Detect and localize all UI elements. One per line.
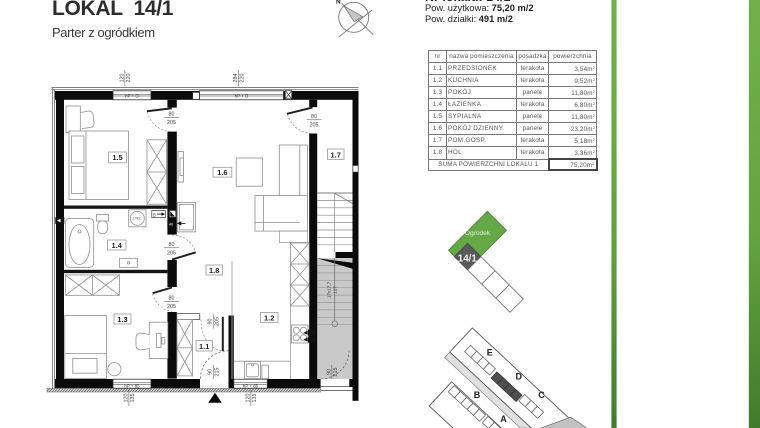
svg-text:40: 40	[169, 222, 173, 226]
svg-text:120: 120	[123, 394, 129, 403]
svg-text:215: 215	[333, 368, 339, 377]
svg-text:205: 205	[167, 250, 176, 256]
svg-text:hP + O: hP + O	[125, 93, 139, 98]
svg-text:220: 220	[240, 74, 246, 83]
svg-text:205: 205	[167, 120, 176, 126]
svg-text:N: N	[336, 0, 341, 6]
svg-text:284: 284	[233, 74, 239, 83]
svg-text:80: 80	[169, 296, 175, 302]
svg-text:A: A	[500, 414, 507, 424]
svg-text:Z.W.C.: Z.W.C.	[132, 217, 142, 221]
svg-text:90: 90	[208, 369, 214, 375]
svg-text:205: 205	[167, 304, 176, 310]
svg-text:80: 80	[169, 242, 175, 248]
svg-text:1.1: 1.1	[199, 342, 209, 351]
svg-text:B: B	[474, 390, 481, 400]
svg-text:hP + 85: hP + 85	[243, 383, 259, 388]
svg-text:1.3: 1.3	[117, 315, 127, 324]
svg-text:135: 135	[252, 394, 258, 403]
svg-text:215: 215	[214, 368, 220, 377]
svg-text:17x17,7: 17x17,7	[327, 281, 332, 298]
svg-text:Ogródek: Ogródek	[465, 230, 491, 237]
svg-text:135: 135	[130, 394, 136, 403]
svg-text:90: 90	[208, 319, 214, 325]
svg-text:205: 205	[310, 122, 319, 128]
svg-text:80: 80	[169, 112, 175, 118]
svg-text:5: 5	[153, 212, 156, 218]
svg-text:220: 220	[126, 74, 132, 83]
svg-text:1.8: 1.8	[209, 266, 219, 275]
svg-text:1.6: 1.6	[217, 168, 227, 177]
svg-text:hP + 85: hP + 85	[124, 383, 140, 388]
svg-text:E: E	[487, 347, 493, 357]
svg-text:C: C	[538, 390, 545, 400]
svg-text:90: 90	[326, 369, 332, 375]
svg-text:1.5: 1.5	[112, 153, 122, 162]
svg-text:120: 120	[245, 394, 251, 403]
svg-text:hP + O: hP + O	[235, 93, 249, 98]
svg-text:D: D	[516, 371, 523, 381]
svg-text:120: 120	[119, 74, 125, 83]
svg-text:1.7: 1.7	[331, 150, 341, 159]
svg-text:80: 80	[311, 114, 317, 120]
svg-text:1.4: 1.4	[112, 241, 123, 250]
svg-text:205: 205	[214, 317, 220, 326]
svg-text:127: 127	[332, 286, 337, 294]
svg-text:14/1: 14/1	[458, 254, 478, 265]
svg-text:1.2: 1.2	[264, 314, 274, 323]
